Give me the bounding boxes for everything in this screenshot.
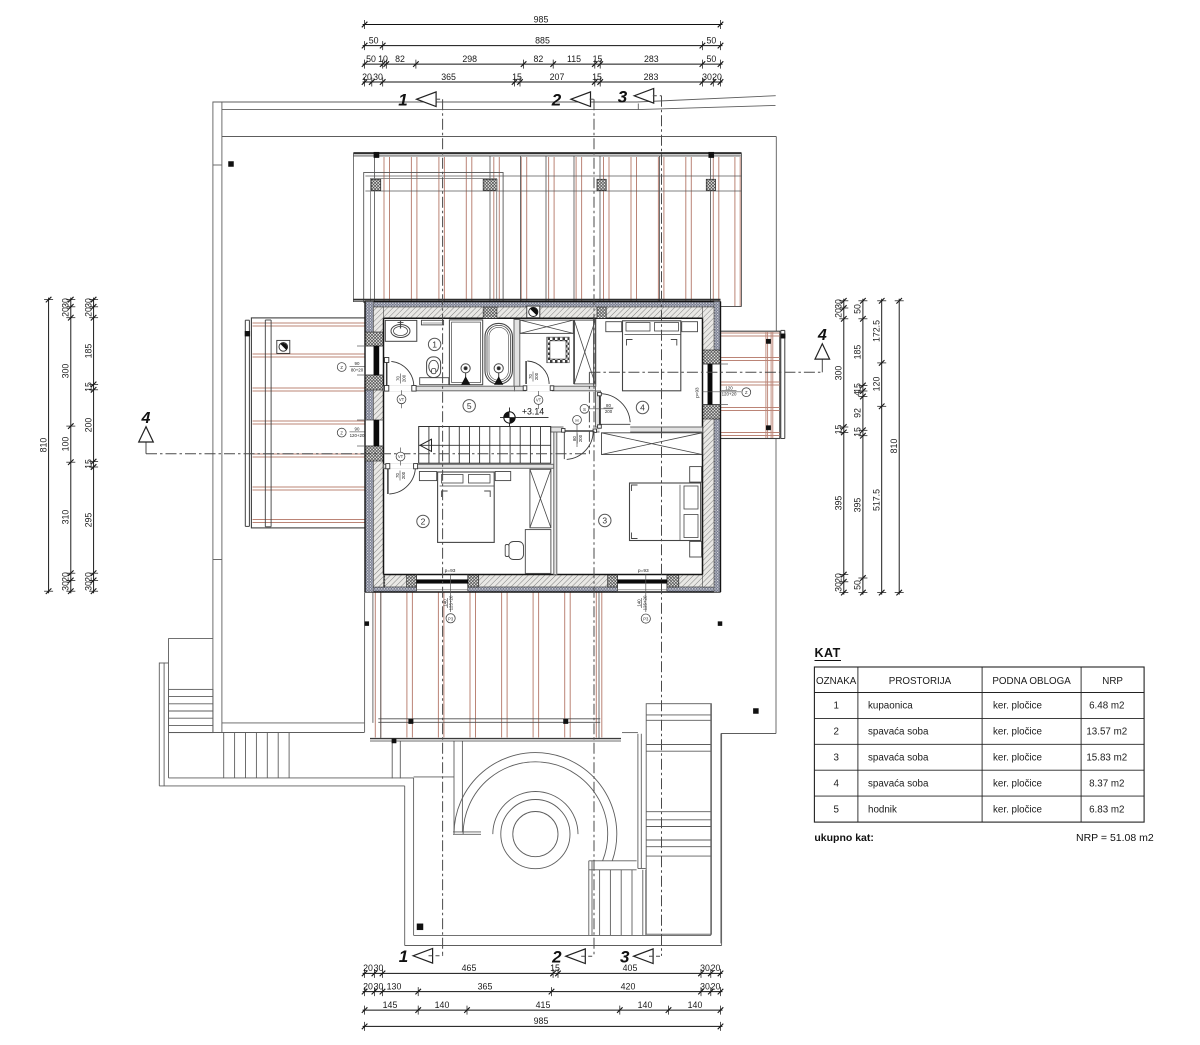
- svg-text:985: 985: [534, 1016, 549, 1026]
- svg-text:395: 395: [853, 498, 863, 513]
- svg-text:S: S: [583, 407, 586, 412]
- svg-text:Z: Z: [340, 365, 343, 370]
- svg-text:415: 415: [536, 1000, 551, 1010]
- svg-text:3: 3: [833, 753, 839, 764]
- svg-text:ker. pločice: ker. pločice: [993, 727, 1043, 738]
- svg-text:20: 20: [83, 572, 93, 582]
- svg-text:810: 810: [889, 439, 899, 454]
- svg-text:70: 70: [396, 376, 401, 381]
- svg-text:p=93: p=93: [694, 387, 699, 398]
- svg-text:70: 70: [528, 374, 533, 379]
- svg-text:120+20: 120+20: [350, 433, 365, 438]
- svg-text:185: 185: [83, 344, 93, 359]
- svg-text:200: 200: [83, 418, 93, 433]
- svg-text:PODNA OBLOGA: PODNA OBLOGA: [992, 676, 1071, 687]
- svg-text:VT: VT: [399, 397, 405, 402]
- svg-text:15: 15: [83, 382, 93, 392]
- svg-text:KAT: KAT: [815, 646, 841, 660]
- svg-text:90: 90: [355, 361, 360, 366]
- svg-text:80+20: 80+20: [351, 367, 364, 372]
- svg-text:kupaonica: kupaonica: [868, 701, 913, 712]
- svg-text:200: 200: [578, 434, 583, 442]
- svg-text:20: 20: [61, 307, 71, 317]
- svg-text:spavaća soba: spavaća soba: [868, 753, 929, 764]
- svg-text:140: 140: [688, 1000, 703, 1010]
- svg-text:82: 82: [534, 54, 544, 64]
- svg-text:395: 395: [834, 496, 844, 511]
- svg-text:298: 298: [462, 54, 477, 64]
- svg-text:15.83 m2: 15.83 m2: [1086, 753, 1127, 764]
- svg-text:ker. pločice: ker. pločice: [993, 701, 1043, 712]
- svg-text:283: 283: [644, 72, 659, 82]
- svg-text:6.83 m2: 6.83 m2: [1089, 804, 1124, 815]
- svg-text:207: 207: [550, 72, 565, 82]
- svg-text:2: 2: [833, 727, 838, 738]
- svg-text:885: 885: [535, 35, 550, 45]
- svg-text:20: 20: [712, 72, 722, 82]
- svg-text:90: 90: [355, 427, 360, 432]
- svg-text:140: 140: [638, 1000, 653, 1010]
- svg-text:283: 283: [644, 54, 659, 64]
- svg-text:50: 50: [366, 54, 376, 64]
- svg-text:5: 5: [833, 804, 839, 815]
- svg-text:P3: P3: [448, 616, 454, 621]
- svg-text:3: 3: [602, 516, 607, 526]
- svg-text:15: 15: [592, 72, 602, 82]
- svg-text:2: 2: [551, 91, 562, 110]
- svg-text:20: 20: [363, 981, 373, 991]
- svg-text:15: 15: [512, 72, 522, 82]
- svg-text:140: 140: [435, 1000, 450, 1010]
- svg-text:OZNAKA: OZNAKA: [816, 676, 857, 687]
- svg-text:2: 2: [421, 516, 426, 526]
- svg-text:spavaća soba: spavaća soba: [868, 778, 929, 789]
- svg-text:NRP: NRP: [1102, 676, 1123, 687]
- svg-text:15: 15: [550, 963, 560, 973]
- svg-text:15: 15: [834, 425, 844, 435]
- svg-text:125+20: 125+20: [643, 595, 648, 610]
- svg-text:30: 30: [374, 981, 384, 991]
- svg-text:20: 20: [362, 72, 372, 82]
- svg-text:20: 20: [363, 963, 373, 973]
- svg-text:405: 405: [623, 963, 638, 973]
- svg-text:4: 4: [833, 778, 839, 789]
- svg-text:13.57 m2: 13.57 m2: [1086, 727, 1127, 738]
- svg-text:185: 185: [853, 345, 863, 360]
- svg-text:50: 50: [853, 580, 863, 590]
- svg-text:30: 30: [834, 582, 844, 592]
- svg-text:10: 10: [378, 54, 388, 64]
- svg-text:295: 295: [83, 513, 93, 528]
- svg-text:15: 15: [83, 459, 93, 469]
- svg-text:50: 50: [369, 35, 379, 45]
- svg-text:30: 30: [702, 72, 712, 82]
- svg-text:120: 120: [872, 377, 882, 392]
- svg-text:300: 300: [61, 364, 71, 379]
- svg-text:15: 15: [853, 427, 863, 437]
- svg-text:200: 200: [534, 372, 539, 380]
- svg-text:120: 120: [725, 385, 733, 390]
- svg-text:310: 310: [61, 510, 71, 525]
- svg-text:20: 20: [61, 572, 71, 582]
- svg-text:30: 30: [83, 581, 93, 591]
- svg-text:6.48 m2: 6.48 m2: [1089, 701, 1124, 712]
- svg-text:ker. pločice: ker. pločice: [993, 753, 1043, 764]
- svg-text:465: 465: [462, 963, 477, 973]
- svg-text:20: 20: [83, 307, 93, 317]
- svg-text:ker. pločice: ker. pločice: [993, 778, 1043, 789]
- svg-text:985: 985: [534, 14, 549, 24]
- svg-text:4: 4: [853, 391, 863, 396]
- svg-text:ukupno kat:: ukupno kat:: [814, 832, 874, 844]
- svg-text:30: 30: [700, 963, 710, 973]
- svg-text:hodnik: hodnik: [868, 804, 897, 815]
- svg-text:115: 115: [567, 54, 581, 64]
- svg-text:30: 30: [83, 298, 93, 308]
- svg-text:20: 20: [711, 963, 721, 973]
- svg-text:1: 1: [432, 339, 437, 349]
- svg-text:20: 20: [834, 573, 844, 583]
- svg-text:p=93: p=93: [638, 568, 649, 574]
- svg-text:P3: P3: [643, 617, 649, 622]
- svg-text:30: 30: [700, 981, 710, 991]
- svg-text:50: 50: [707, 54, 717, 64]
- svg-text:1: 1: [398, 91, 407, 110]
- svg-text:4: 4: [817, 327, 827, 344]
- svg-text:200: 200: [402, 374, 407, 382]
- svg-text:200: 200: [605, 409, 613, 414]
- svg-text:130: 130: [387, 981, 402, 991]
- svg-text:365: 365: [441, 72, 456, 82]
- svg-text:20: 20: [834, 308, 844, 318]
- svg-text:82: 82: [395, 54, 405, 64]
- svg-text:80: 80: [572, 436, 577, 441]
- svg-text:p=93: p=93: [445, 568, 456, 574]
- svg-text:5: 5: [467, 401, 472, 411]
- svg-text:30: 30: [834, 299, 844, 309]
- svg-text:145: 145: [383, 1000, 398, 1010]
- svg-text:ker. pločice: ker. pločice: [993, 804, 1043, 815]
- svg-text:140: 140: [637, 599, 642, 607]
- svg-text:30: 30: [373, 72, 383, 82]
- svg-text:125+20: 125+20: [449, 595, 454, 610]
- svg-text:PROSTORIJA: PROSTORIJA: [889, 676, 952, 687]
- svg-text:30: 30: [61, 298, 71, 308]
- svg-text:100: 100: [61, 437, 71, 452]
- svg-text:1: 1: [399, 947, 408, 966]
- svg-text:8.37 m2: 8.37 m2: [1089, 778, 1124, 789]
- svg-text:VT: VT: [536, 398, 542, 403]
- svg-text:Z: Z: [745, 390, 748, 395]
- svg-text:200: 200: [401, 471, 406, 479]
- svg-text:810: 810: [38, 438, 48, 453]
- svg-text:420: 420: [621, 981, 636, 991]
- svg-text:spavaća soba: spavaća soba: [868, 727, 929, 738]
- svg-text:70: 70: [395, 473, 400, 478]
- svg-text:3: 3: [618, 88, 628, 107]
- svg-text:Z: Z: [340, 431, 343, 436]
- svg-text:H: H: [575, 418, 578, 423]
- svg-text:20: 20: [711, 981, 721, 991]
- svg-text:1: 1: [833, 701, 838, 712]
- svg-text:50: 50: [707, 35, 717, 45]
- svg-text:140: 140: [443, 599, 448, 607]
- svg-text:172.5: 172.5: [872, 320, 882, 342]
- svg-text:4: 4: [141, 410, 151, 427]
- svg-text:30: 30: [61, 581, 71, 591]
- svg-text:92: 92: [853, 408, 863, 418]
- svg-text:365: 365: [478, 981, 493, 991]
- svg-text:80: 80: [606, 403, 611, 408]
- svg-text:4: 4: [640, 403, 645, 413]
- svg-text:120+20: 120+20: [722, 392, 737, 397]
- svg-text:50: 50: [853, 304, 863, 314]
- svg-text:517.5: 517.5: [872, 489, 882, 511]
- svg-text:300: 300: [834, 366, 844, 381]
- svg-text:NRP = 51.08 m2: NRP = 51.08 m2: [1076, 832, 1154, 844]
- svg-text:VT: VT: [398, 454, 404, 459]
- svg-text:15: 15: [593, 54, 603, 64]
- svg-text:+3.14: +3.14: [522, 407, 544, 417]
- svg-text:30: 30: [374, 963, 384, 973]
